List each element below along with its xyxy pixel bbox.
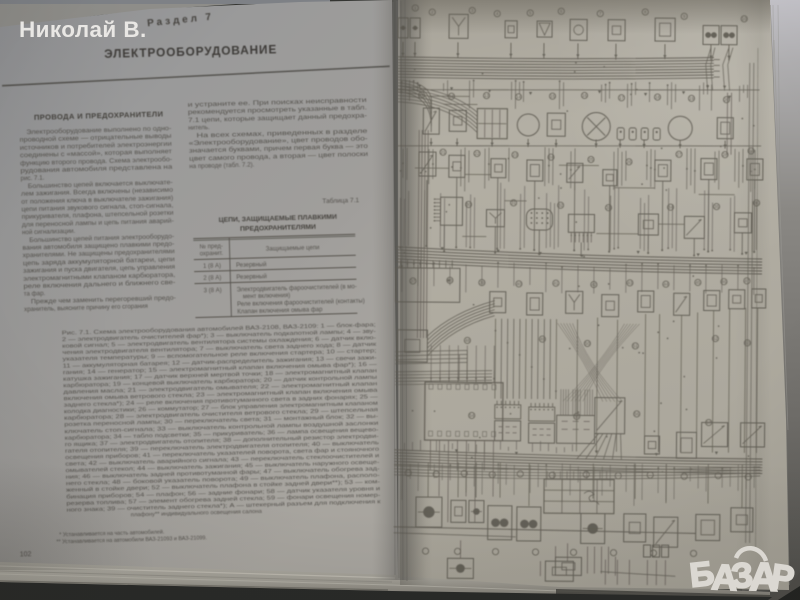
- svg-text:Николай В.: Николай В.: [19, 17, 147, 42]
